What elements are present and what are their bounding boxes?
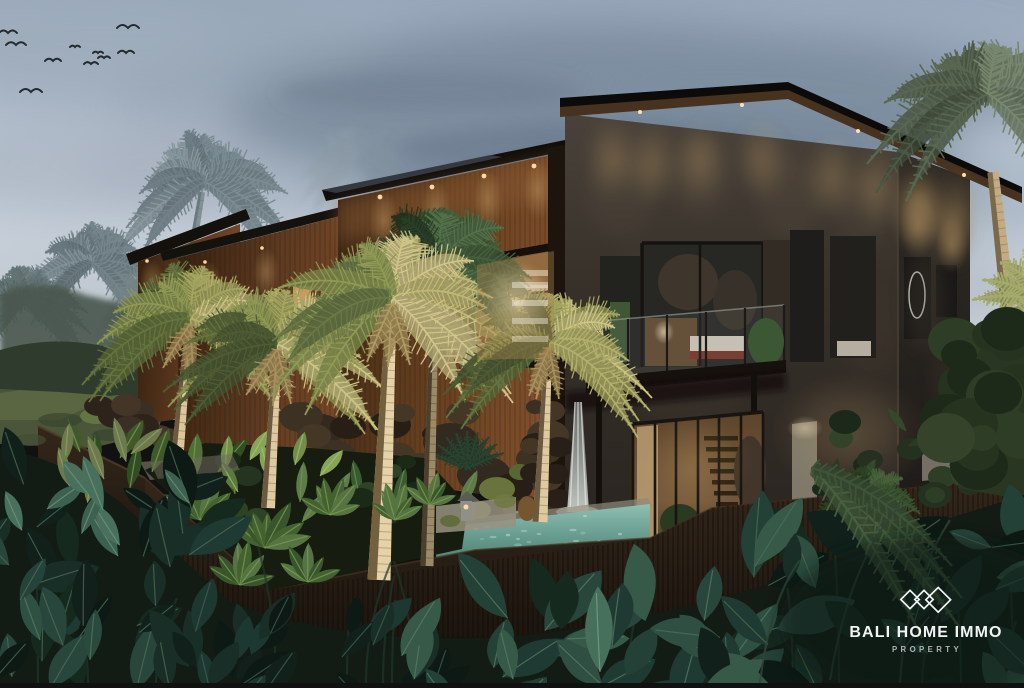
svg-text:PROPERTY: PROPERTY [892, 645, 962, 654]
svg-text:BALI HOME IMMO: BALI HOME IMMO [849, 624, 1002, 641]
